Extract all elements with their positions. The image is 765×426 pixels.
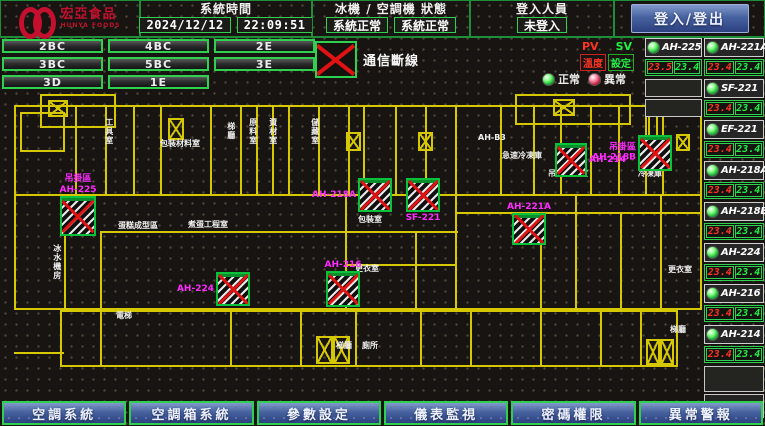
wall [500,105,502,194]
device-area-label: 吊掛區 [592,143,636,153]
floor-plan: 吊掛區AH-225AH-218ASF-221AH-221AAH-214吊掛區AH… [0,92,708,395]
unit-status-led-icon [706,328,719,341]
device-AH-218A: AH-218A [358,178,392,212]
unit-name: AH-218B [721,206,765,217]
system-time-section: 系統時間 2024/12/12 22:09:51 [140,0,312,37]
unit-name: AH-218A [721,165,765,176]
unit-name: AH-224 [721,247,760,258]
unit-values: 23.423.4 [704,305,764,322]
unit-cell-AH-221A[interactable]: AH-221A [704,38,764,57]
abnormal-led-icon [588,73,601,86]
device-label: AH-224 [177,284,214,294]
room-label: 電梯 [116,312,132,321]
unit-cell-AH-224[interactable]: AH-224 [704,243,764,262]
wall [455,105,457,194]
device-AH-225: 吊掛區AH-225 [60,196,96,236]
unit-status-led-icon [706,164,719,177]
floor-button-2E[interactable]: 2E [214,39,315,53]
normal-label: 正常 [558,71,580,87]
unit-sv-value: 23.4 [735,266,763,279]
unit-name: SF-221 [721,83,758,94]
abnormal-label: 異常 [604,71,626,87]
unit-status-led-icon [706,205,719,218]
unit-sv-value: 23.4 [674,61,700,74]
unit-cell-AH-214[interactable]: AH-214 [704,325,764,344]
wall [240,105,242,194]
room-label: 梯廳 [336,342,352,351]
unit-values: 23.423.4 [704,100,764,117]
unit-status-led-icon [706,287,719,300]
device-icon-AH-225[interactable] [60,196,96,236]
wall [533,105,535,194]
wall [230,310,232,367]
time-value: 22:09:51 [237,17,313,33]
wall [540,310,542,367]
logo-subtitle: HUNYA FOODS [60,23,120,29]
unit-values: 23.423.4 [704,346,764,363]
machine-status-label: 冰機 / 空調機 狀態 [313,1,469,16]
device-label: AH-216 [324,260,361,270]
room-label: 急速冷凍庫 [502,152,542,161]
unit-values: 23.523.4 [645,59,702,76]
empty-cell [704,366,764,392]
room-label: 煮蛋工程室 [188,221,228,230]
chiller-status: 系統正常 [326,17,388,33]
device-name-label: AH-224 [177,284,214,294]
floor-button-2BC[interactable]: 2BC [2,39,103,53]
sv-label: SV [616,40,632,53]
wall [133,105,135,194]
unit-name: AH-216 [721,288,760,299]
unit-sv-value: 23.4 [735,184,763,197]
stairs-icon [168,118,184,140]
room-label: 包裝材料室 [160,140,200,149]
unit-status-led-icon [706,82,719,95]
wall [300,310,302,367]
unit-name: EF-221 [721,124,757,135]
unit-sv-value: 23.4 [735,61,763,74]
floor-button-5BC[interactable]: 5BC [108,57,209,71]
wall [575,196,577,310]
comm-fail-label: 通信斷線 [363,50,419,69]
unit-values: 23.423.4 [704,59,764,76]
wall [600,310,602,367]
wall [640,310,642,367]
stairs-icon [646,339,660,365]
wall [395,105,397,194]
empty-cell [645,79,702,97]
wall [160,105,162,194]
date-value: 2024/12/12 [139,17,230,33]
floor-buttons: 2BC4BC2E3BC5BC3E3D1E [2,39,315,89]
unit-status-led-icon [706,246,719,259]
comm-fail-icon [315,41,357,78]
unit-pv-value: 23.4 [706,143,734,156]
unit-pv-value: 23.5 [647,61,673,74]
wall [14,352,64,354]
device-name-label: AH-216 [324,260,361,270]
unit-cell-AH-218A[interactable]: AH-218A [704,161,764,180]
device-AH-218B: 吊掛區AH-218B [638,135,672,171]
unit-pv-value: 23.4 [706,184,734,197]
stairs-icon [553,99,575,116]
floor-button-3D[interactable]: 3D [2,75,103,89]
device-AH-214: AH-214 [555,143,587,177]
unit-sv-value: 23.4 [735,143,763,156]
unit-status-led-icon [706,123,719,136]
nav-button-5[interactable]: 密碼權限 [511,401,635,425]
device-icon-AH-214[interactable] [555,143,587,177]
unit-column-a: AH-22523.523.4 [645,38,702,119]
unit-status-led-icon [647,41,660,54]
unit-values: 23.423.4 [704,182,764,199]
room-label: 原料室 [248,118,257,145]
room-label: 更衣室 [668,266,692,275]
unit-values: 23.423.4 [704,264,764,281]
unit-pv-value: 23.4 [706,61,734,74]
wall [470,310,472,367]
device-AH-224: AH-224 [216,272,250,306]
hmi-screen: 宏亞食品 HUNYA FOODS 系統時間 2024/12/12 22:09:5… [0,0,765,426]
wall [60,310,678,367]
wall [620,212,622,310]
unit-name: AH-225 [662,42,701,53]
unit-sv-value: 23.4 [735,348,763,361]
unit-sv-value: 23.4 [735,307,763,320]
setting-label: 設定 [608,54,634,71]
unit-status-led-icon [706,41,719,54]
unit-cell-SF-221[interactable]: SF-221 [704,79,764,98]
machine-status-section: 冰機 / 空調機 狀態 系統正常 系統正常 [312,0,470,37]
login-button-section: 登入/登出 [614,0,765,37]
unit-pv-value: 23.4 [706,266,734,279]
unit-pv-value: 23.4 [706,102,734,115]
stairs-icon [316,336,333,364]
unit-cell-AH-216[interactable]: AH-216 [704,284,764,303]
device-name-label: SF-221 [406,213,441,223]
hunya-logo-icon [19,6,55,32]
wall [288,105,290,194]
comm-alarm: 通信斷線 [315,41,419,78]
unit-pv-value: 23.4 [706,225,734,238]
nav-button-1[interactable]: 空調系統 [2,401,126,425]
room-label: 工具室 [104,118,113,145]
unit-sv-value: 23.4 [735,102,763,115]
room-label: 冷凍庫 [638,170,662,179]
wall [355,310,357,367]
device-label: 吊掛區AH-218B [592,143,636,164]
room-label: 梯廳 [226,122,235,140]
device-label: 吊掛區AH-225 [59,174,96,195]
room-label: 冰水機房 [52,244,61,280]
login-user-value: 未登入 [517,17,567,33]
device-icon-AH-218A[interactable] [358,178,392,212]
stairs-icon [660,339,674,365]
unit-column-b: AH-221A23.423.4SF-22123.423.4EF-22123.42… [704,38,764,420]
wall [100,231,102,310]
device-name-label: AH-221A [507,202,551,212]
logo-title: 宏亞食品 [60,8,120,21]
room-label: 蛋糕成型區 [118,222,158,231]
device-label: AH-218A [312,190,356,200]
room-label: 梯廳 [670,326,686,335]
device-icon-SF-221[interactable] [406,178,440,212]
unit-cell-EF-221[interactable]: EF-221 [704,120,764,139]
logo: 宏亞食品 HUNYA FOODS [0,0,140,37]
device-icon-AH-221A[interactable] [512,213,546,245]
unit-name: AH-221A [721,42,765,53]
bottom-nav: 空調系統空調箱系統參數設定儀表監視密碼權限異常警報 [0,399,765,426]
unit-pv-value: 23.4 [706,307,734,320]
room-label: 包裝室 [358,216,382,225]
wall [20,112,65,152]
floor-button-3BC[interactable]: 3BC [2,57,103,71]
device-name-label: AH-225 [59,185,96,195]
unit-pv-value: 23.4 [706,348,734,361]
floor-button-3E[interactable]: 3E [214,57,315,71]
device-SF-221: SF-221 [406,178,440,212]
unit-sv-value: 23.4 [735,225,763,238]
nav-button-6[interactable]: 異常警報 [639,401,763,425]
empty-cell [645,99,702,117]
temp-label: 溫度 [580,54,606,71]
floor-button-1E[interactable]: 1E [108,75,209,89]
stairs-icon [48,100,68,117]
unit-values: 23.423.4 [704,223,764,240]
room-label: 廁所 [362,342,378,351]
wall [100,310,102,367]
floor-button-4BC[interactable]: 4BC [108,39,209,53]
room-label: 儲藏室 [310,118,319,145]
system-time-label: 系統時間 [141,1,311,16]
device-name-label: AH-218B [592,153,636,163]
nav-button-4[interactable]: 儀表監視 [384,401,508,425]
unit-values: 23.423.4 [704,141,764,158]
device-name-label: AH-218A [312,190,356,200]
room-label: 資材室 [268,118,277,145]
login-user-label: 登入人員 [471,1,613,16]
wall [455,212,702,214]
nav-button-2[interactable]: 空調箱系統 [129,401,253,425]
pv-label: PV [582,40,599,53]
device-icon-AH-218B[interactable] [638,135,672,171]
device-label: SF-221 [406,213,441,223]
wall [100,231,458,233]
wall [660,196,662,310]
device-AH-216: AH-216 [326,271,360,307]
ahu-status: 系統正常 [394,17,456,33]
unit-cell-AH-225[interactable]: AH-225 [645,38,702,57]
wall [210,105,212,194]
room-label: AH-B3 [478,134,506,143]
normal-led-icon [542,73,555,86]
wall [455,196,457,310]
device-icon-AH-224[interactable] [216,272,250,306]
login-user-section: 登入人員 未登入 [470,0,614,37]
unit-name: AH-214 [721,329,760,340]
wall [415,231,417,310]
device-icon-AH-216[interactable] [326,271,360,307]
unit-cell-AH-218B[interactable]: AH-218B [704,202,764,221]
stairs-icon [418,132,433,151]
header: 宏亞食品 HUNYA FOODS 系統時間 2024/12/12 22:09:5… [0,0,765,38]
stairs-icon [676,134,690,151]
nav-button-3[interactable]: 參數設定 [257,401,381,425]
stairs-icon [346,132,361,151]
device-area-label: 吊掛區 [59,174,96,184]
wall [420,310,422,367]
login-logout-button[interactable]: 登入/登出 [631,4,749,33]
device-label: AH-221A [507,202,551,212]
device-AH-221A: AH-221A [512,213,546,245]
